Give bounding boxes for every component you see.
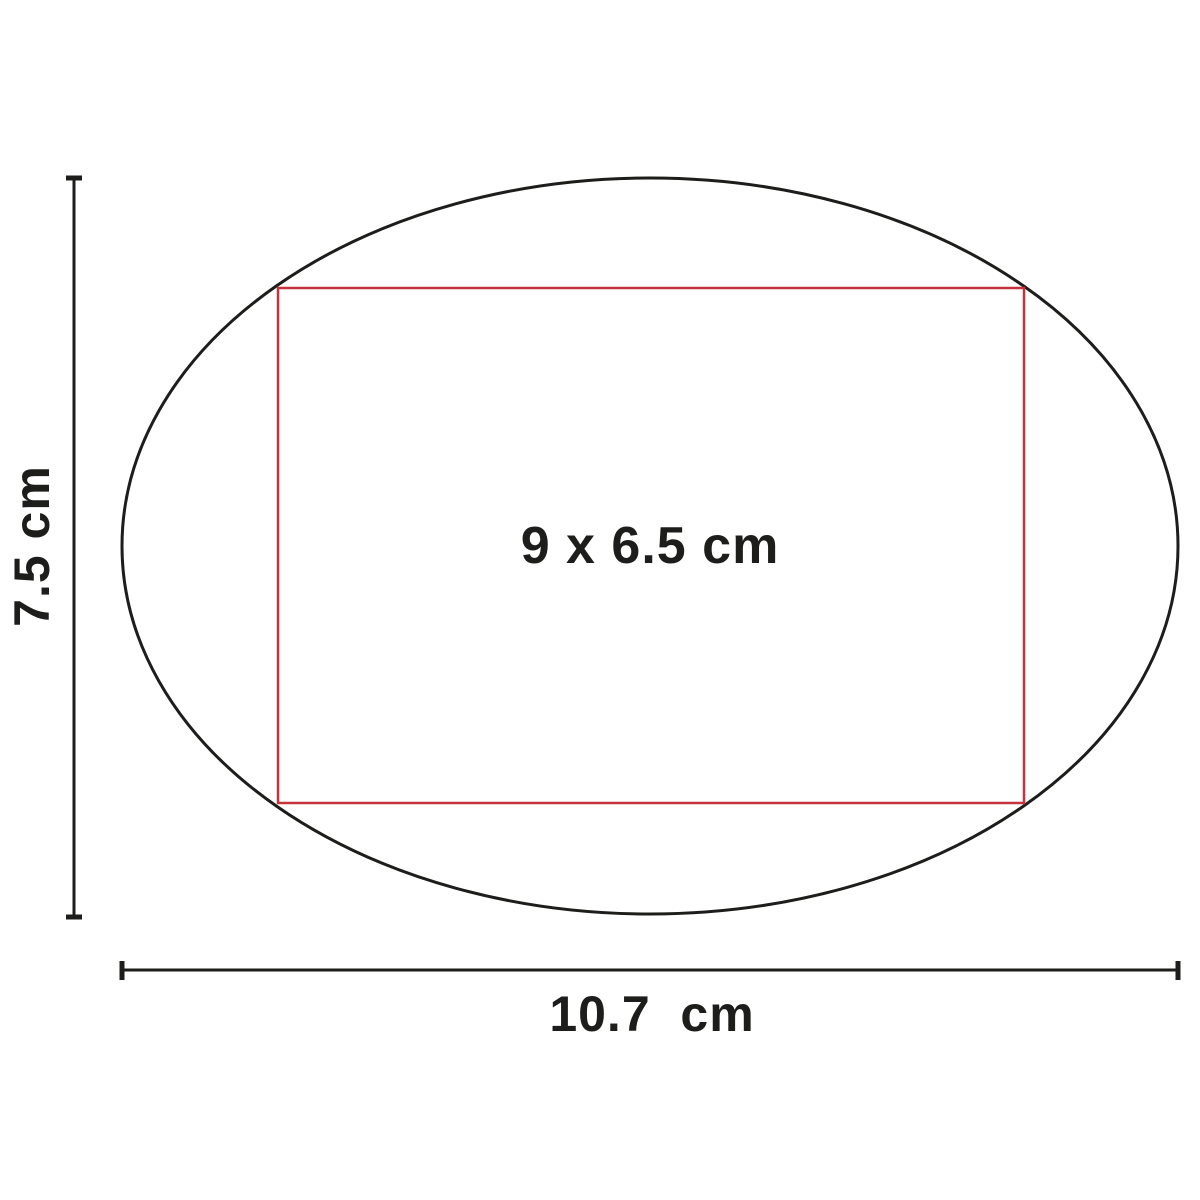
height-dimension-label: 7.5 cm	[7, 465, 57, 627]
print-area-label: 9 x 6.5 cm	[521, 520, 780, 572]
height-dimension-line	[66, 178, 82, 917]
width-dimension-line	[122, 961, 1178, 980]
diagram-canvas: 9 x 6.5 cm 7.5 cm 10.7 cm	[0, 0, 1200, 1200]
width-dimension-label: 10.7 cm	[549, 989, 754, 1039]
